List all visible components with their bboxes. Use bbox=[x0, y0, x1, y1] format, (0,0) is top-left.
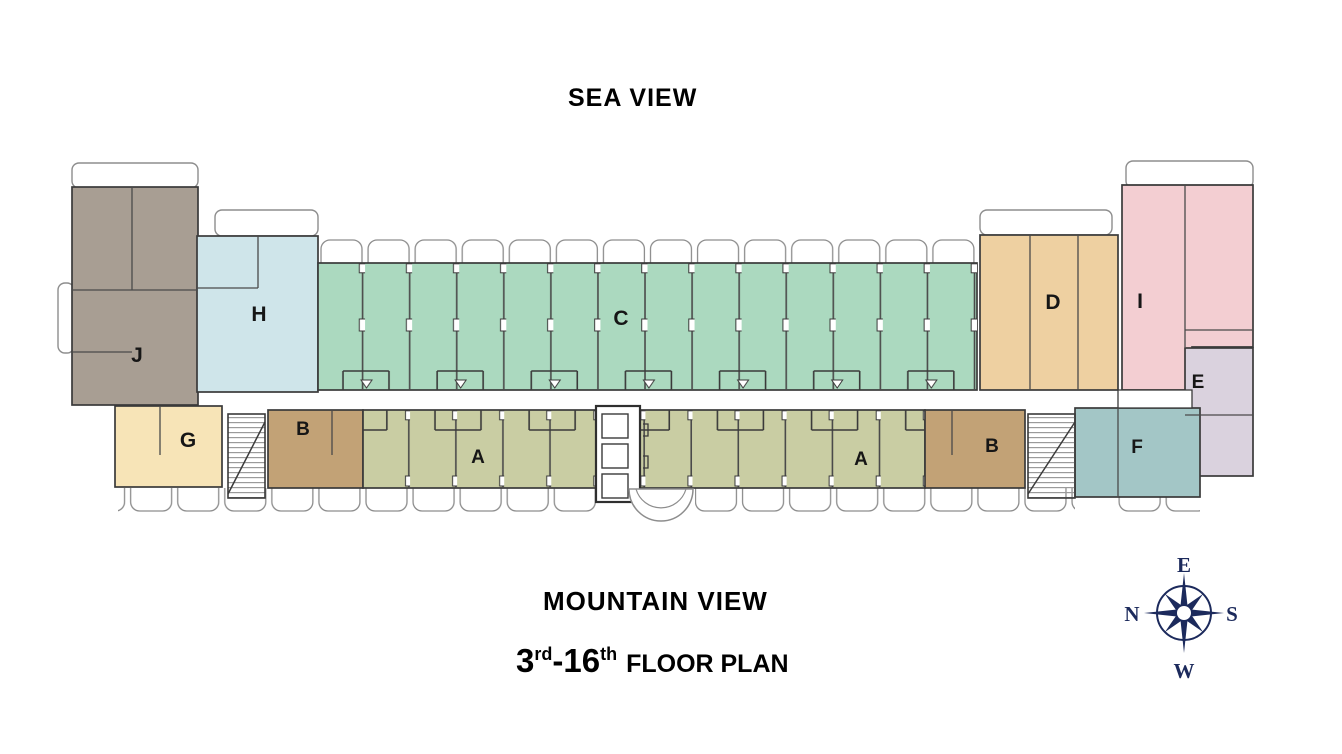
unit-h-label: H bbox=[251, 303, 266, 326]
unit-a-entries bbox=[363, 410, 925, 488]
unit-a-left-label: A bbox=[471, 447, 485, 468]
balcony-j bbox=[72, 163, 198, 188]
unit-c-label: C bbox=[613, 307, 628, 330]
floor-range-dash: - bbox=[552, 642, 563, 679]
compass-letter-bottom: W bbox=[1174, 659, 1195, 683]
balcony-h bbox=[215, 210, 318, 236]
balcony-d bbox=[980, 210, 1112, 235]
staircase-right[interactable] bbox=[1028, 414, 1075, 498]
unit-a-right-label: A bbox=[854, 449, 868, 470]
unit-i-label: I bbox=[1137, 290, 1143, 313]
unit-f-label: F bbox=[1131, 437, 1143, 458]
compass-center-dot bbox=[1177, 606, 1191, 620]
sea-view-title: SEA VIEW bbox=[568, 84, 697, 113]
unit-j-label: J bbox=[131, 344, 143, 367]
floor-number-end: 16 bbox=[563, 642, 600, 679]
floor-plan-drawing: J H C G B A A B D I E F E S W N bbox=[0, 0, 1342, 754]
floor-plan-page: SEA VIEW bbox=[0, 0, 1342, 754]
mountain-view-title: MOUNTAIN VIEW bbox=[543, 586, 768, 617]
compass-letter-left: N bbox=[1124, 602, 1139, 626]
staircase-left[interactable] bbox=[228, 414, 265, 498]
floor-plan-title: 3rd-16thFLOOR PLAN bbox=[516, 642, 789, 680]
balcony-row-mountain-right bbox=[695, 488, 1075, 514]
floor-number-start: 3 bbox=[516, 642, 534, 679]
floor-ordinal-end: th bbox=[600, 644, 617, 664]
floor-plan-suffix: FLOOR PLAN bbox=[626, 650, 789, 678]
floor-ordinal-start: rd bbox=[534, 644, 552, 664]
elevator-cab-2 bbox=[602, 444, 628, 468]
unit-g-label: G bbox=[180, 429, 196, 452]
unit-b-right-region[interactable] bbox=[925, 410, 1025, 488]
elevator-cab-1 bbox=[602, 414, 628, 438]
balcony-row-mountain-left bbox=[118, 488, 598, 514]
unit-j-region[interactable] bbox=[72, 187, 198, 405]
elevator-cab-3 bbox=[602, 474, 628, 498]
balcony-i bbox=[1126, 161, 1253, 188]
compass-rose: E S W N bbox=[1124, 553, 1237, 683]
curved-bay-window bbox=[629, 489, 693, 521]
unit-b-left-region[interactable] bbox=[268, 410, 363, 488]
unit-d-label: D bbox=[1045, 291, 1060, 314]
service-room-strip bbox=[1118, 390, 1192, 408]
balcony-row-sea-side bbox=[318, 237, 977, 263]
compass-letter-top: E bbox=[1177, 553, 1191, 577]
unit-c-entries bbox=[318, 263, 977, 390]
unit-b-right-label: B bbox=[985, 436, 999, 457]
compass-letter-right: S bbox=[1226, 602, 1238, 626]
unit-b-left-label: B bbox=[296, 419, 310, 440]
unit-g-region[interactable] bbox=[115, 406, 222, 487]
unit-e-label: E bbox=[1192, 372, 1205, 393]
